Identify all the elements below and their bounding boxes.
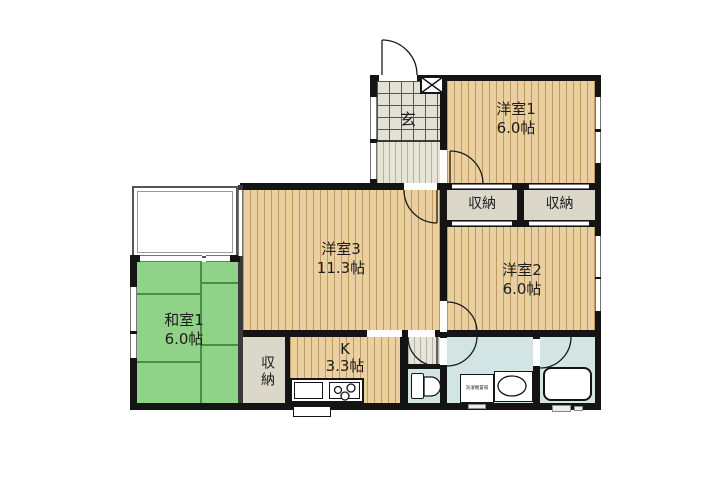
kitchen-step: [293, 406, 331, 417]
exterior-step: [468, 404, 486, 409]
entrance-door-arc: [382, 40, 417, 75]
closet-label-top-right: 収納: [524, 196, 595, 212]
room-label-kitchen-size: 3.3帖: [310, 357, 380, 375]
room-label-yoshitsu3-name: 洋室3: [291, 240, 391, 258]
toilet-tank: [411, 373, 424, 399]
window: [370, 97, 377, 139]
window: [370, 143, 377, 179]
tatami-line: [202, 282, 238, 284]
veranda: [132, 186, 238, 258]
wall-washitsu-right: [238, 262, 243, 403]
veranda-post-right: [230, 255, 240, 262]
closet-sliding-door: [452, 221, 512, 226]
window: [206, 255, 230, 262]
washing-machine-space: 洗濯機置場: [460, 374, 494, 403]
toilet-hall-floor: [408, 337, 440, 364]
wall-toilet-top: [408, 364, 440, 369]
closet-label-bottom: 収納: [255, 347, 275, 397]
room-label-yoshitsu2-name: 洋室2: [472, 261, 572, 279]
window: [595, 279, 601, 311]
washing-machine-label: 洗濯機置場: [466, 386, 489, 391]
room-label-yoshitsu3-size: 11.3帖: [291, 259, 391, 277]
yoshitsu1-door-opening: [440, 150, 447, 183]
window: [595, 132, 601, 163]
exterior-step: [552, 405, 571, 412]
bathtub: [543, 367, 592, 401]
entrance-opening: [379, 75, 417, 81]
toilet-hall-door-opening: [408, 330, 435, 337]
window: [238, 190, 243, 256]
room-label-washitsu1-size: 6.0帖: [134, 330, 234, 348]
closet-sliding-door: [452, 184, 512, 189]
wall-closet-mid: [517, 183, 524, 227]
stove: [329, 382, 360, 399]
tatami-line: [137, 361, 200, 363]
wall-kitchen-right: [400, 330, 408, 403]
washroom-door-opening: [440, 338, 447, 365]
window: [140, 255, 202, 262]
room-label-yoshitsu1-name: 洋室1: [466, 100, 566, 118]
room-label-yoshitsu1-size: 6.0帖: [466, 119, 566, 137]
room-label-genkan: 玄: [395, 106, 421, 130]
exterior-step: [574, 406, 583, 411]
kitchen-passage-opening: [367, 330, 402, 337]
veranda-post-left: [130, 255, 140, 262]
veranda-inner-line: [137, 191, 233, 253]
window: [595, 236, 601, 277]
room-label-kitchen-name: K: [320, 340, 370, 358]
window: [595, 97, 601, 129]
bathroom-door-opening: [533, 339, 540, 366]
yoshitsu2-door-opening: [440, 301, 447, 332]
wall-bottom: [130, 403, 601, 410]
room-label-washitsu1-name: 和室1: [134, 311, 234, 329]
closet-sliding-door: [529, 184, 589, 189]
pipe-space: [420, 76, 444, 94]
floor-plan: 洗濯機置場 洋: [0, 0, 720, 480]
closet-label-top-left: 収納: [447, 196, 517, 212]
closet-sliding-door: [529, 221, 589, 226]
tatami-line: [137, 293, 200, 295]
yoshitsu3-door-opening: [404, 183, 437, 190]
hallway-floor: [377, 142, 440, 183]
genkan-step-line: [377, 140, 440, 142]
room-label-yoshitsu2-size: 6.0帖: [472, 280, 572, 298]
kitchen-sink: [294, 382, 323, 399]
vanity-counter: [494, 371, 533, 402]
